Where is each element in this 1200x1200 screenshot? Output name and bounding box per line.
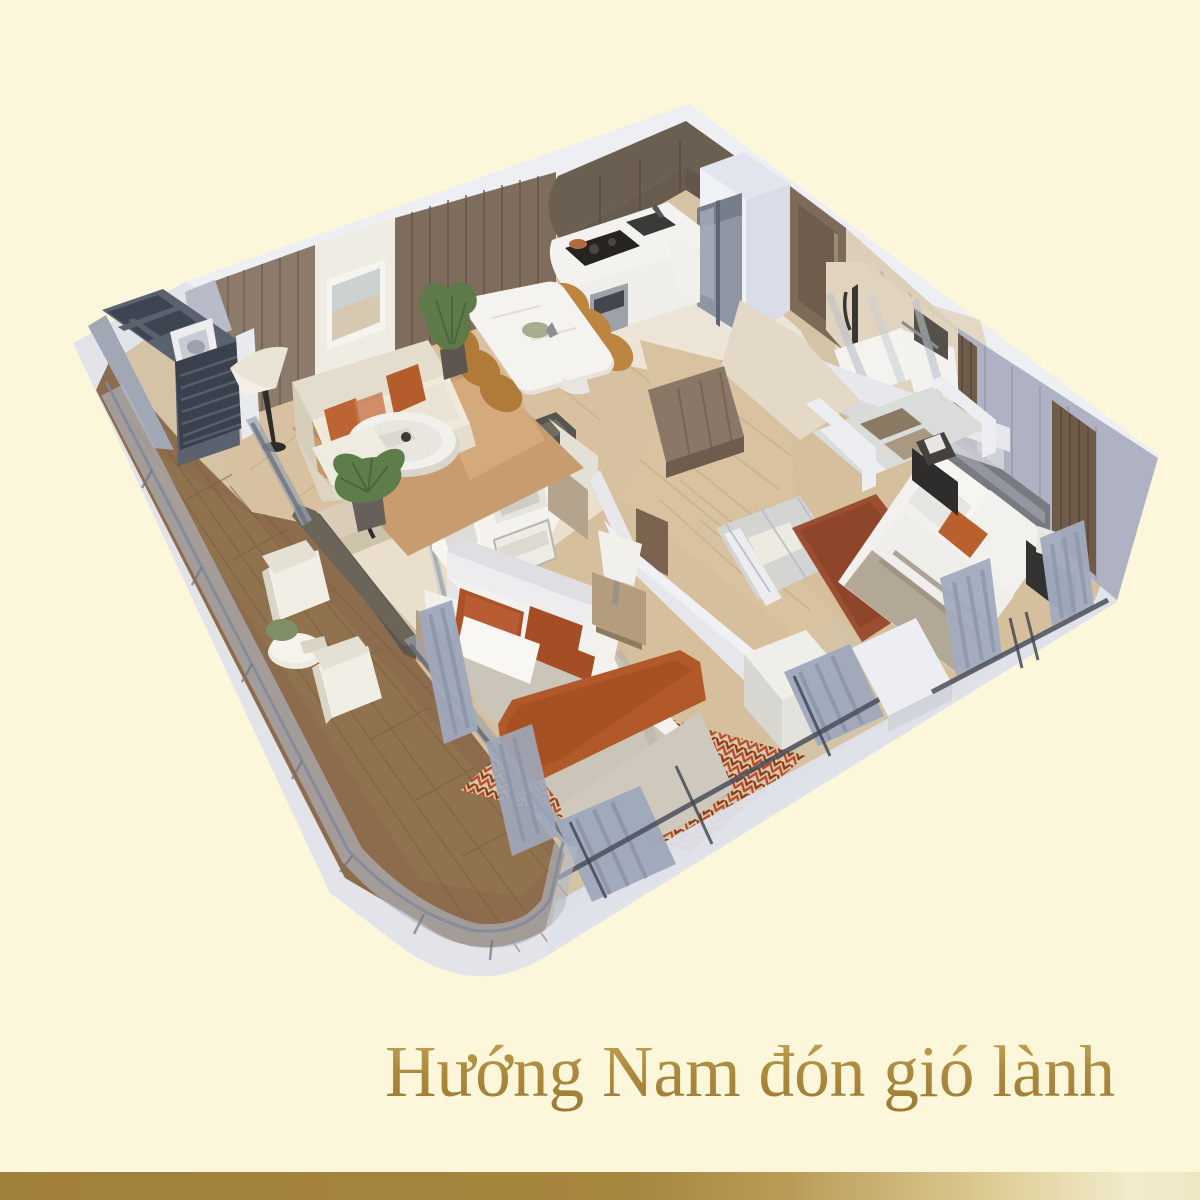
svg-text:Hướng Nam đón gió lành: Hướng Nam đón gió lành	[385, 1031, 1115, 1112]
